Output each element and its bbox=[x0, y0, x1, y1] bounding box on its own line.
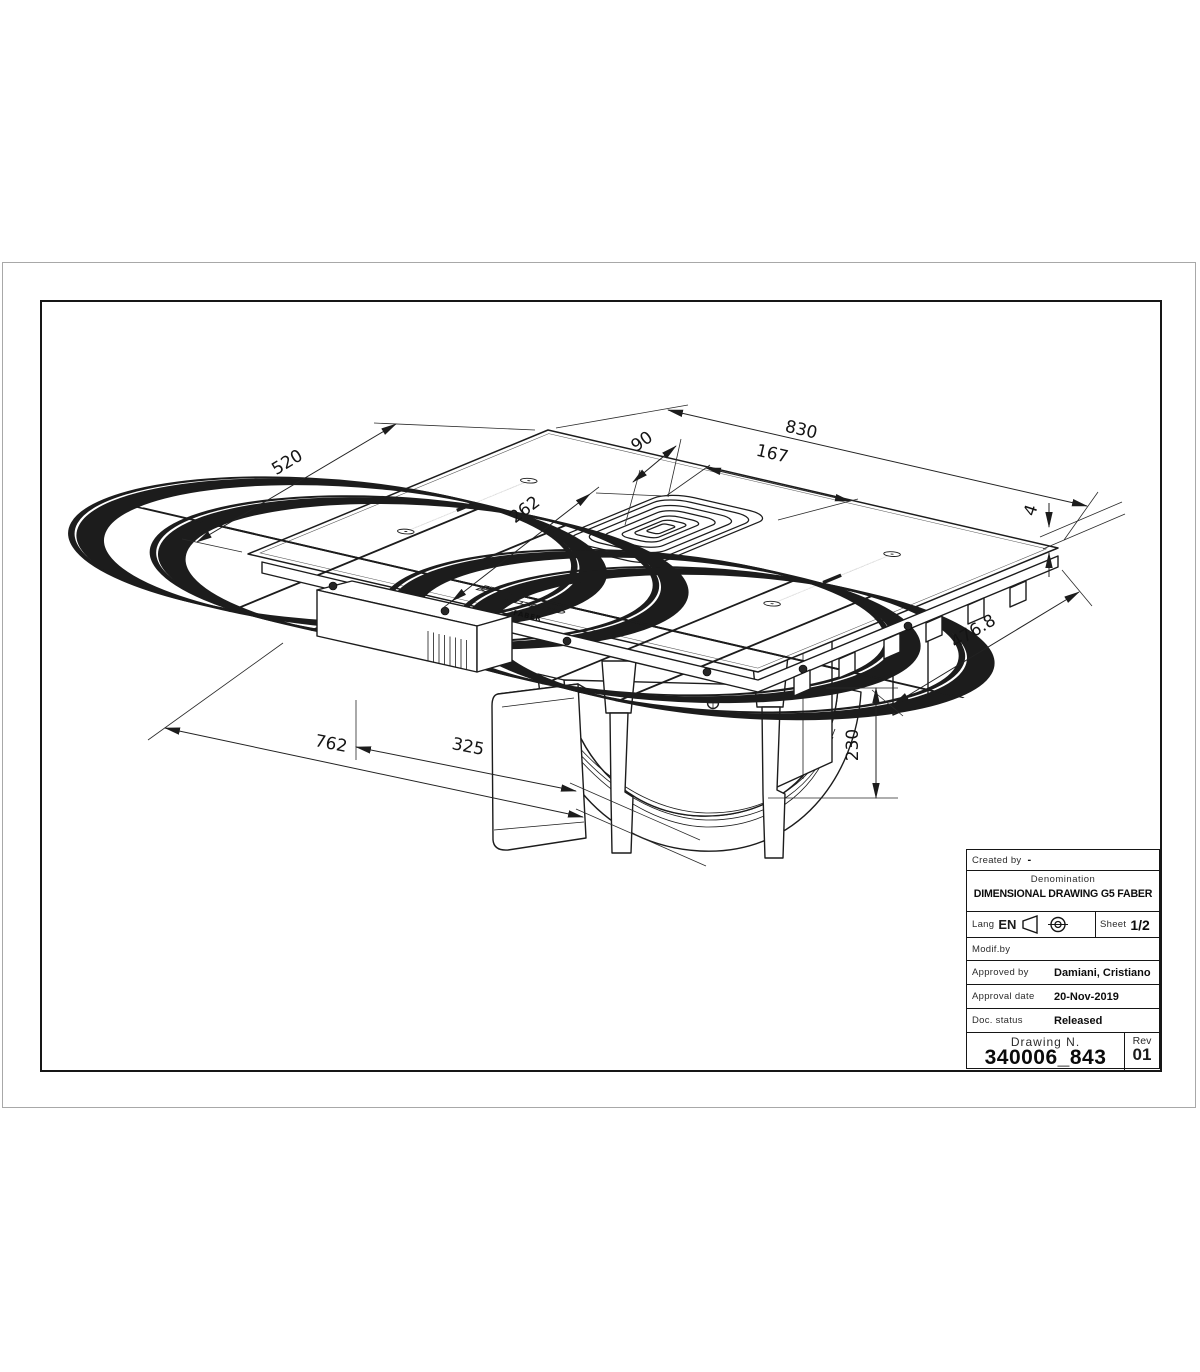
drawing-number-value: 340006_843 bbox=[967, 1049, 1124, 1066]
approval-date-value: 20-Nov-2019 bbox=[1054, 991, 1119, 1003]
left-box-side bbox=[477, 616, 512, 672]
doc-status-label: Doc. status bbox=[972, 1015, 1048, 1026]
blower-outlet-box bbox=[492, 684, 586, 850]
doc-status-value: Released bbox=[1054, 1015, 1102, 1027]
title-block-created-by: Created by - bbox=[967, 850, 1159, 870]
title-block-approval-date: Approval date 20-Nov-2019 bbox=[967, 984, 1159, 1008]
sheet-label: Sheet bbox=[1100, 919, 1126, 930]
title-block-lang-sheet: Lang EN Sheet 1/2 bbox=[967, 911, 1159, 937]
dim-label-230: 230 bbox=[843, 729, 863, 761]
approved-by-value: Damiani, Cristiano bbox=[1054, 967, 1151, 979]
projection-cone-icon bbox=[1020, 915, 1042, 934]
dim-label-325: 325 bbox=[450, 734, 486, 760]
denomination-value: DIMENSIONAL DRAWING G5 FABER bbox=[967, 888, 1159, 900]
technical-drawing-canvas: FABER bbox=[0, 0, 1200, 1372]
rev-cell: Rev 01 bbox=[1125, 1033, 1159, 1070]
title-block-modif-by: Modif.by bbox=[967, 937, 1159, 960]
projection-target-icon bbox=[1046, 915, 1070, 934]
sheet-value: 1/2 bbox=[1130, 917, 1149, 933]
dim-label-167: 167 bbox=[754, 441, 790, 468]
approval-date-label: Approval date bbox=[972, 991, 1048, 1002]
drawing-number-cell: Drawing N. 340006_843 bbox=[967, 1033, 1125, 1070]
approved-by-label: Approved by bbox=[972, 967, 1048, 978]
drawing-sheet-page: { "page": { "background": "#ffffff" }, "… bbox=[0, 0, 1200, 1372]
lang-value: EN bbox=[998, 917, 1016, 932]
created-by-value: - bbox=[1027, 854, 1031, 866]
title-block-drawing-number: Drawing N. 340006_843 Rev 01 bbox=[967, 1032, 1159, 1070]
rev-value: 01 bbox=[1125, 1047, 1159, 1062]
lang-label: Lang bbox=[972, 919, 994, 930]
title-block-approved-by: Approved by Damiani, Cristiano bbox=[967, 960, 1159, 984]
lang-cell: Lang EN bbox=[967, 912, 1096, 937]
dim-label-520: 520 bbox=[268, 446, 306, 480]
title-block: Created by - Denomination DIMENSIONAL DR… bbox=[966, 849, 1160, 1069]
title-block-doc-status: Doc. status Released bbox=[967, 1008, 1159, 1032]
modif-by-label: Modif.by bbox=[972, 944, 1010, 955]
sheet-cell: Sheet 1/2 bbox=[1096, 912, 1159, 937]
title-block-denomination: Denomination DIMENSIONAL DRAWING G5 FABE… bbox=[967, 870, 1159, 911]
denomination-label: Denomination bbox=[967, 871, 1159, 885]
dim-label-762: 762 bbox=[313, 731, 349, 757]
created-by-label: Created by bbox=[972, 855, 1021, 866]
dim-label-4: 4 bbox=[1020, 502, 1042, 518]
dim-label-830: 830 bbox=[783, 417, 819, 444]
